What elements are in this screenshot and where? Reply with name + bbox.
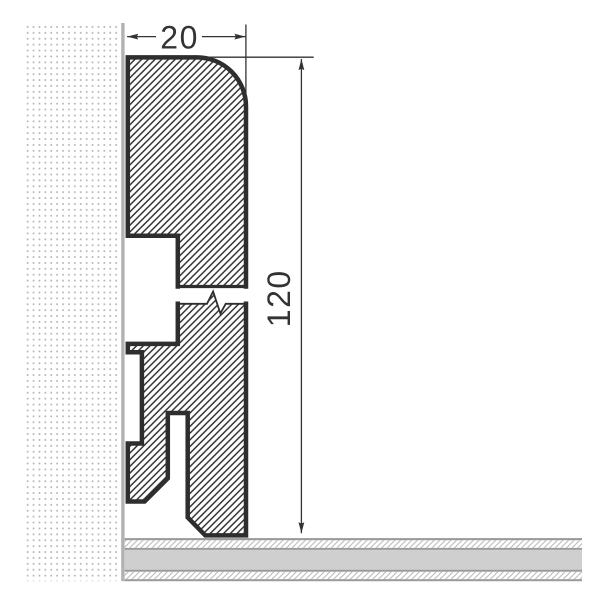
- svg-text:20: 20: [160, 19, 199, 55]
- svg-text:120: 120: [261, 269, 297, 327]
